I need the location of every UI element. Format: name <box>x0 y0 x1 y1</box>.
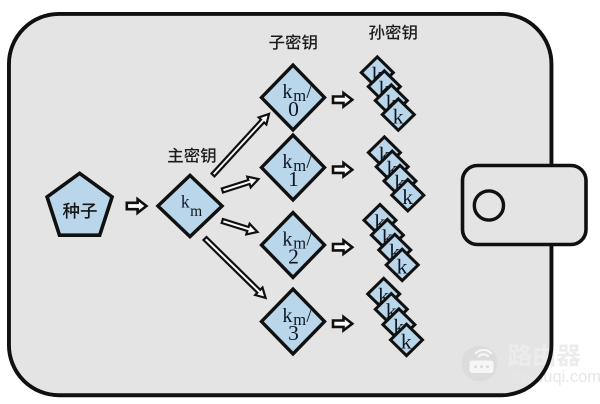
svg-text:k: k <box>402 185 413 209</box>
svg-text:luyouqi.com: luyouqi.com <box>513 368 600 386</box>
svg-text:k: k <box>393 104 404 128</box>
svg-text:0: 0 <box>288 97 299 121</box>
svg-text:2: 2 <box>288 244 299 268</box>
svg-text:k: k <box>401 330 412 354</box>
svg-text:k: k <box>397 255 408 279</box>
svg-text:3: 3 <box>288 321 299 345</box>
svg-text:1: 1 <box>288 167 299 191</box>
